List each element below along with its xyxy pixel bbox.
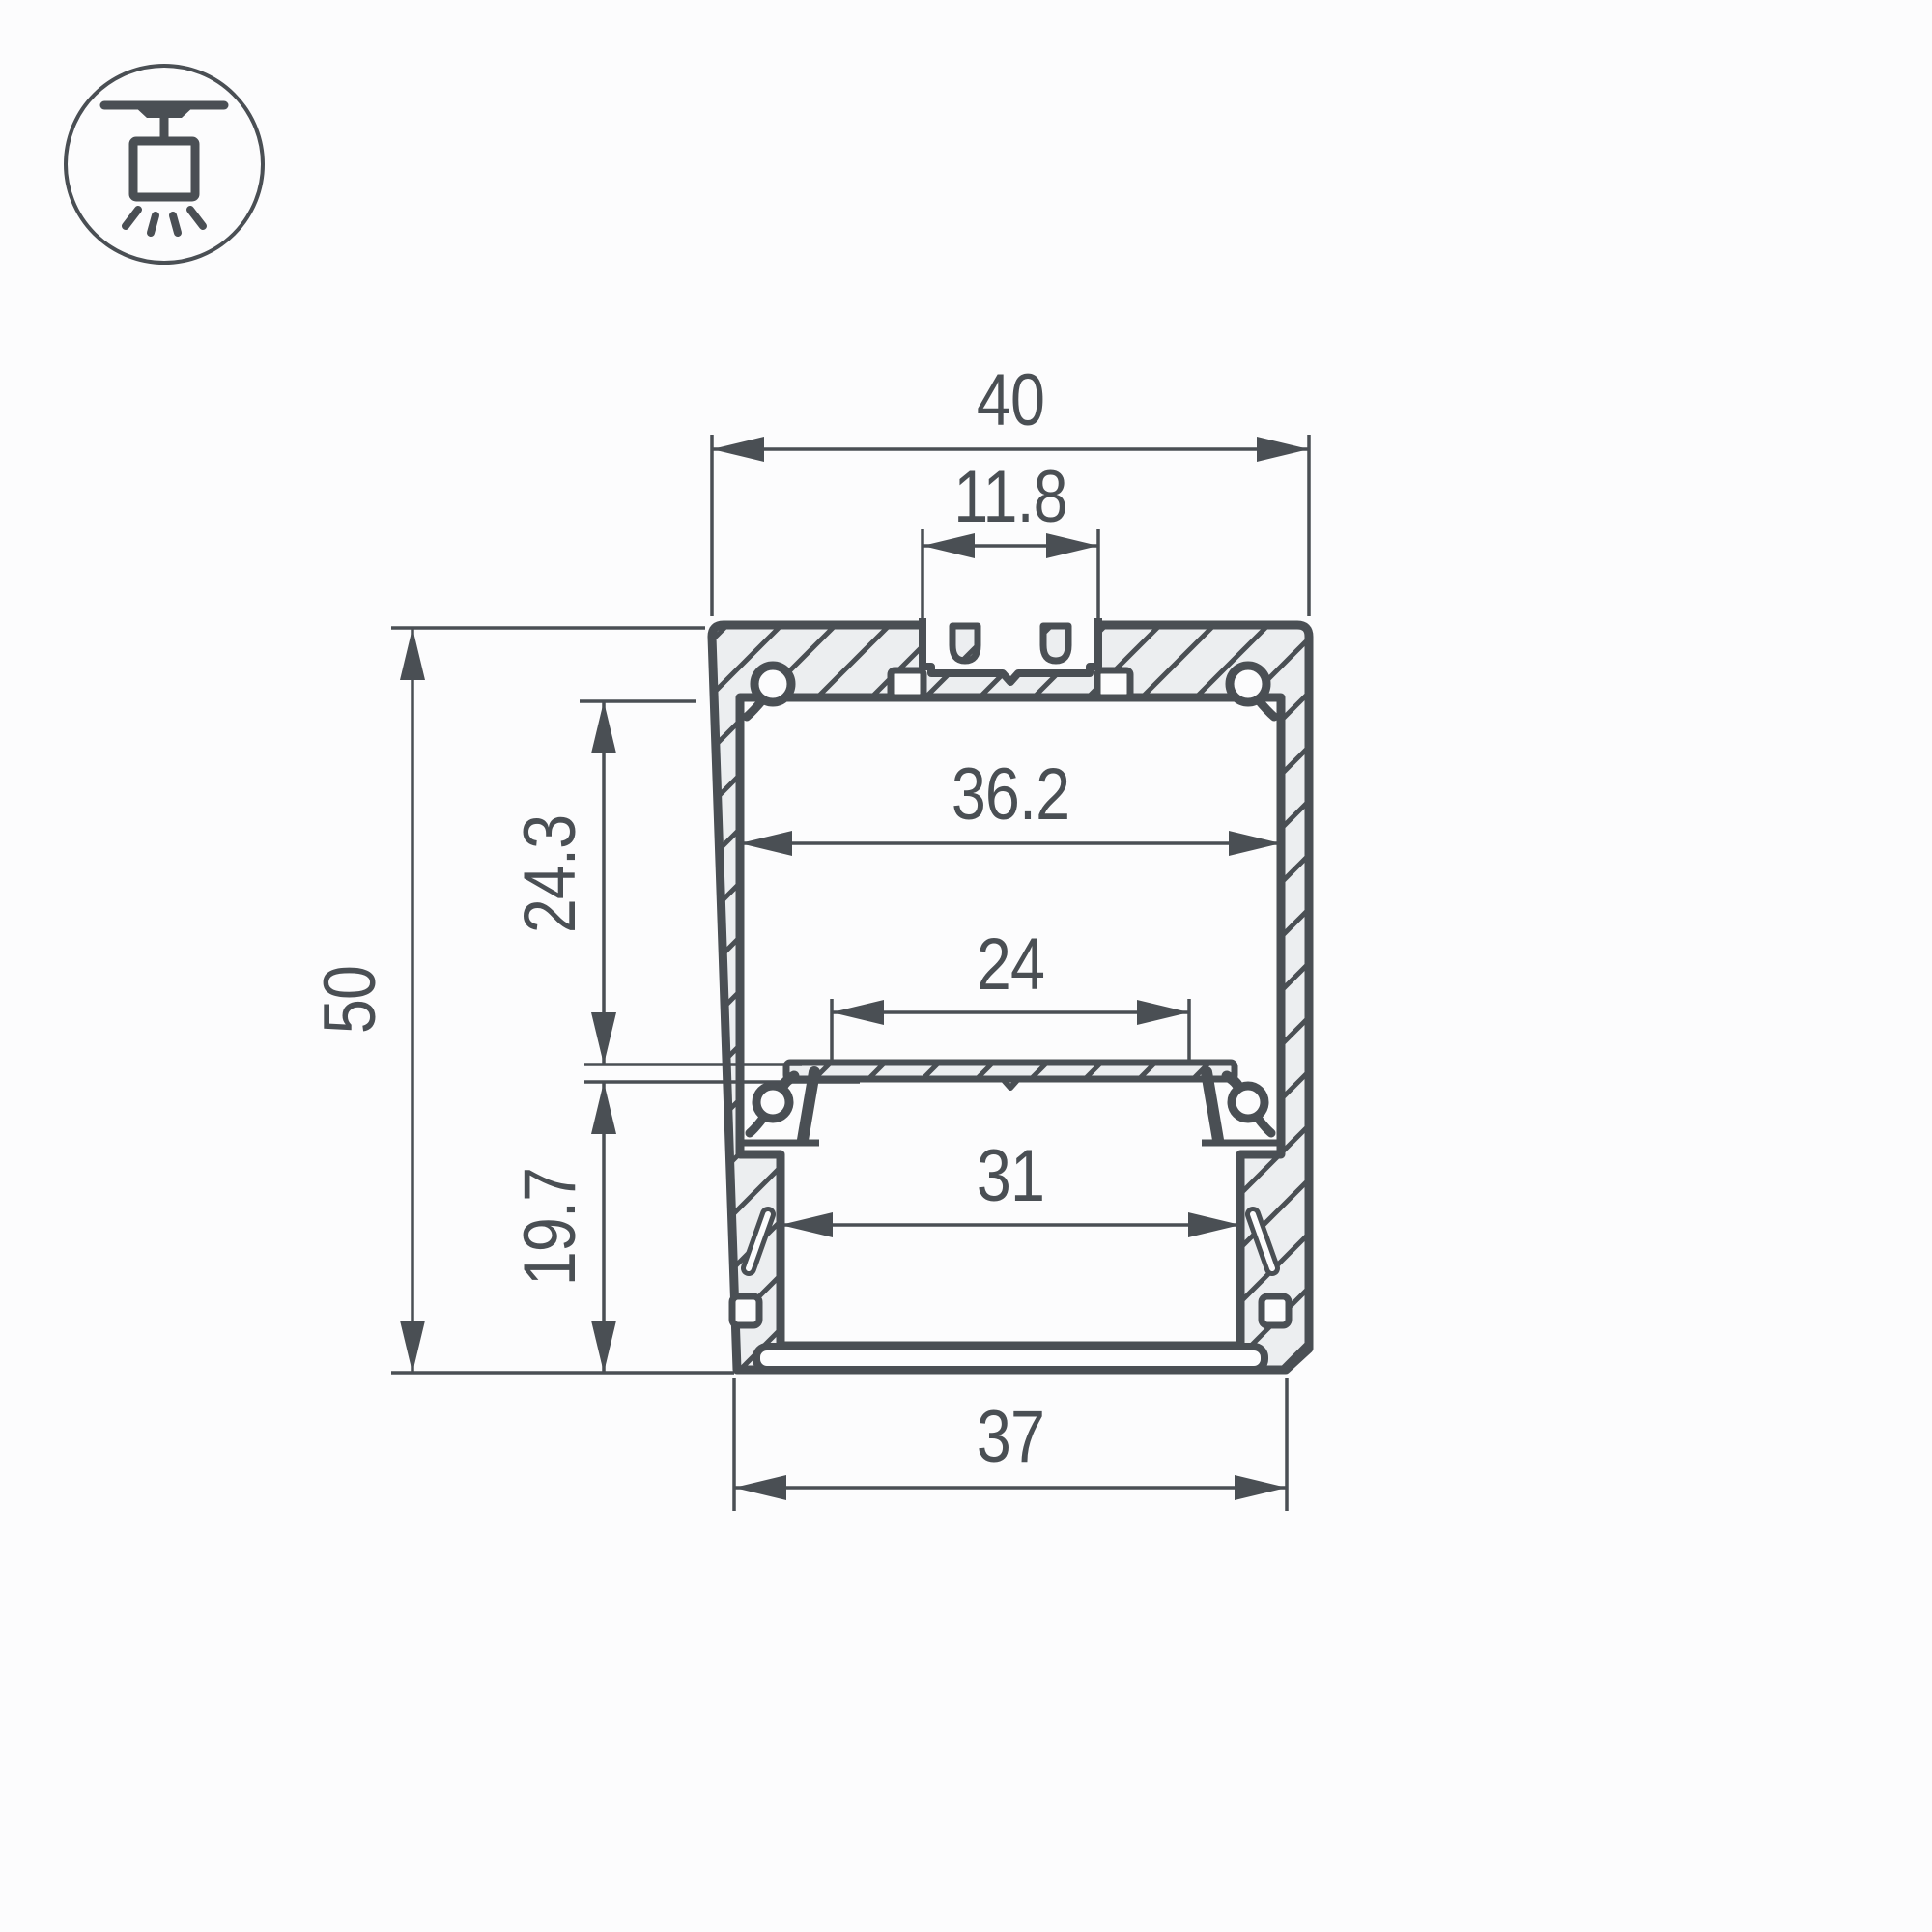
diffuser-plate [756, 1347, 1264, 1370]
dim-label-overall-width: 40 [977, 358, 1044, 440]
top-wall-pocket-left [891, 670, 923, 697]
dim-label-upper-cavity-height: 24.3 [508, 815, 590, 933]
dim-label-top-slot-width: 11.8 [953, 455, 1067, 537]
dim-label-led-plate-width: 24 [977, 923, 1044, 1005]
dim-label-overall-height: 50 [308, 966, 390, 1034]
t-slot-lip-left [952, 626, 978, 661]
t-slot-lip-right [1043, 626, 1068, 661]
clip-seat-right [1262, 1296, 1289, 1325]
clip-seat-left [732, 1296, 759, 1325]
drawing-canvas: 40 11.8 36.2 24 [0, 0, 1932, 1932]
dim-label-lower-inner-width: 31 [977, 1134, 1044, 1216]
dim-label-bottom-width: 37 [977, 1395, 1044, 1477]
icon-luminaire-box [133, 141, 195, 197]
technical-drawing: 40 11.8 36.2 24 [0, 0, 1932, 1932]
top-wall-pocket-right [1097, 670, 1130, 697]
dim-label-lower-cavity-height: 19.7 [508, 1168, 590, 1286]
led-shelf-plate [786, 1063, 1235, 1079]
dim-label-inner-width: 36.2 [952, 753, 1069, 835]
